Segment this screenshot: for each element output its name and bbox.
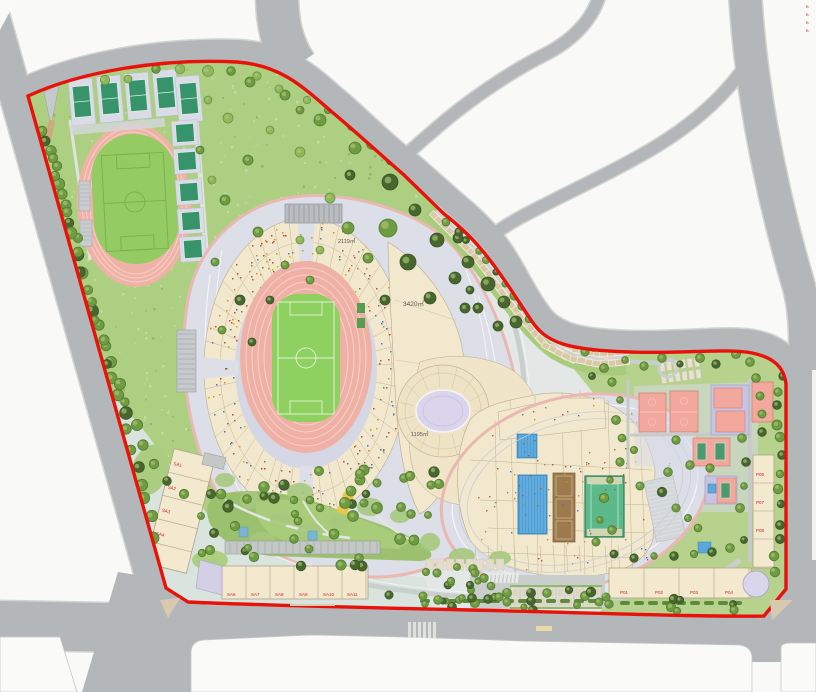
svg-text:B: B	[806, 20, 809, 25]
svg-text:SA10: SA10	[323, 592, 335, 597]
svg-text:3420㎡: 3420㎡	[403, 299, 424, 308]
svg-text:SA11: SA11	[347, 592, 358, 597]
svg-text:1195㎡: 1195㎡	[411, 430, 429, 438]
svg-text:SA6: SA6	[227, 592, 236, 597]
svg-text:P02: P02	[655, 590, 664, 595]
svg-text:P06: P06	[756, 472, 765, 477]
svg-text:P03: P03	[690, 590, 699, 595]
svg-text:SA7: SA7	[251, 592, 260, 597]
svg-text:B: B	[806, 28, 809, 33]
svg-text:SA8: SA8	[275, 592, 284, 597]
svg-text:2119㎡: 2119㎡	[338, 237, 356, 245]
svg-text:P04: P04	[725, 590, 734, 595]
svg-text:B: B	[806, 12, 809, 17]
svg-text:SA9: SA9	[299, 592, 308, 597]
svg-text:P08: P08	[756, 528, 765, 533]
svg-text:P01: P01	[620, 590, 629, 595]
svg-text:B: B	[806, 4, 809, 9]
svg-text:P07: P07	[756, 500, 765, 505]
